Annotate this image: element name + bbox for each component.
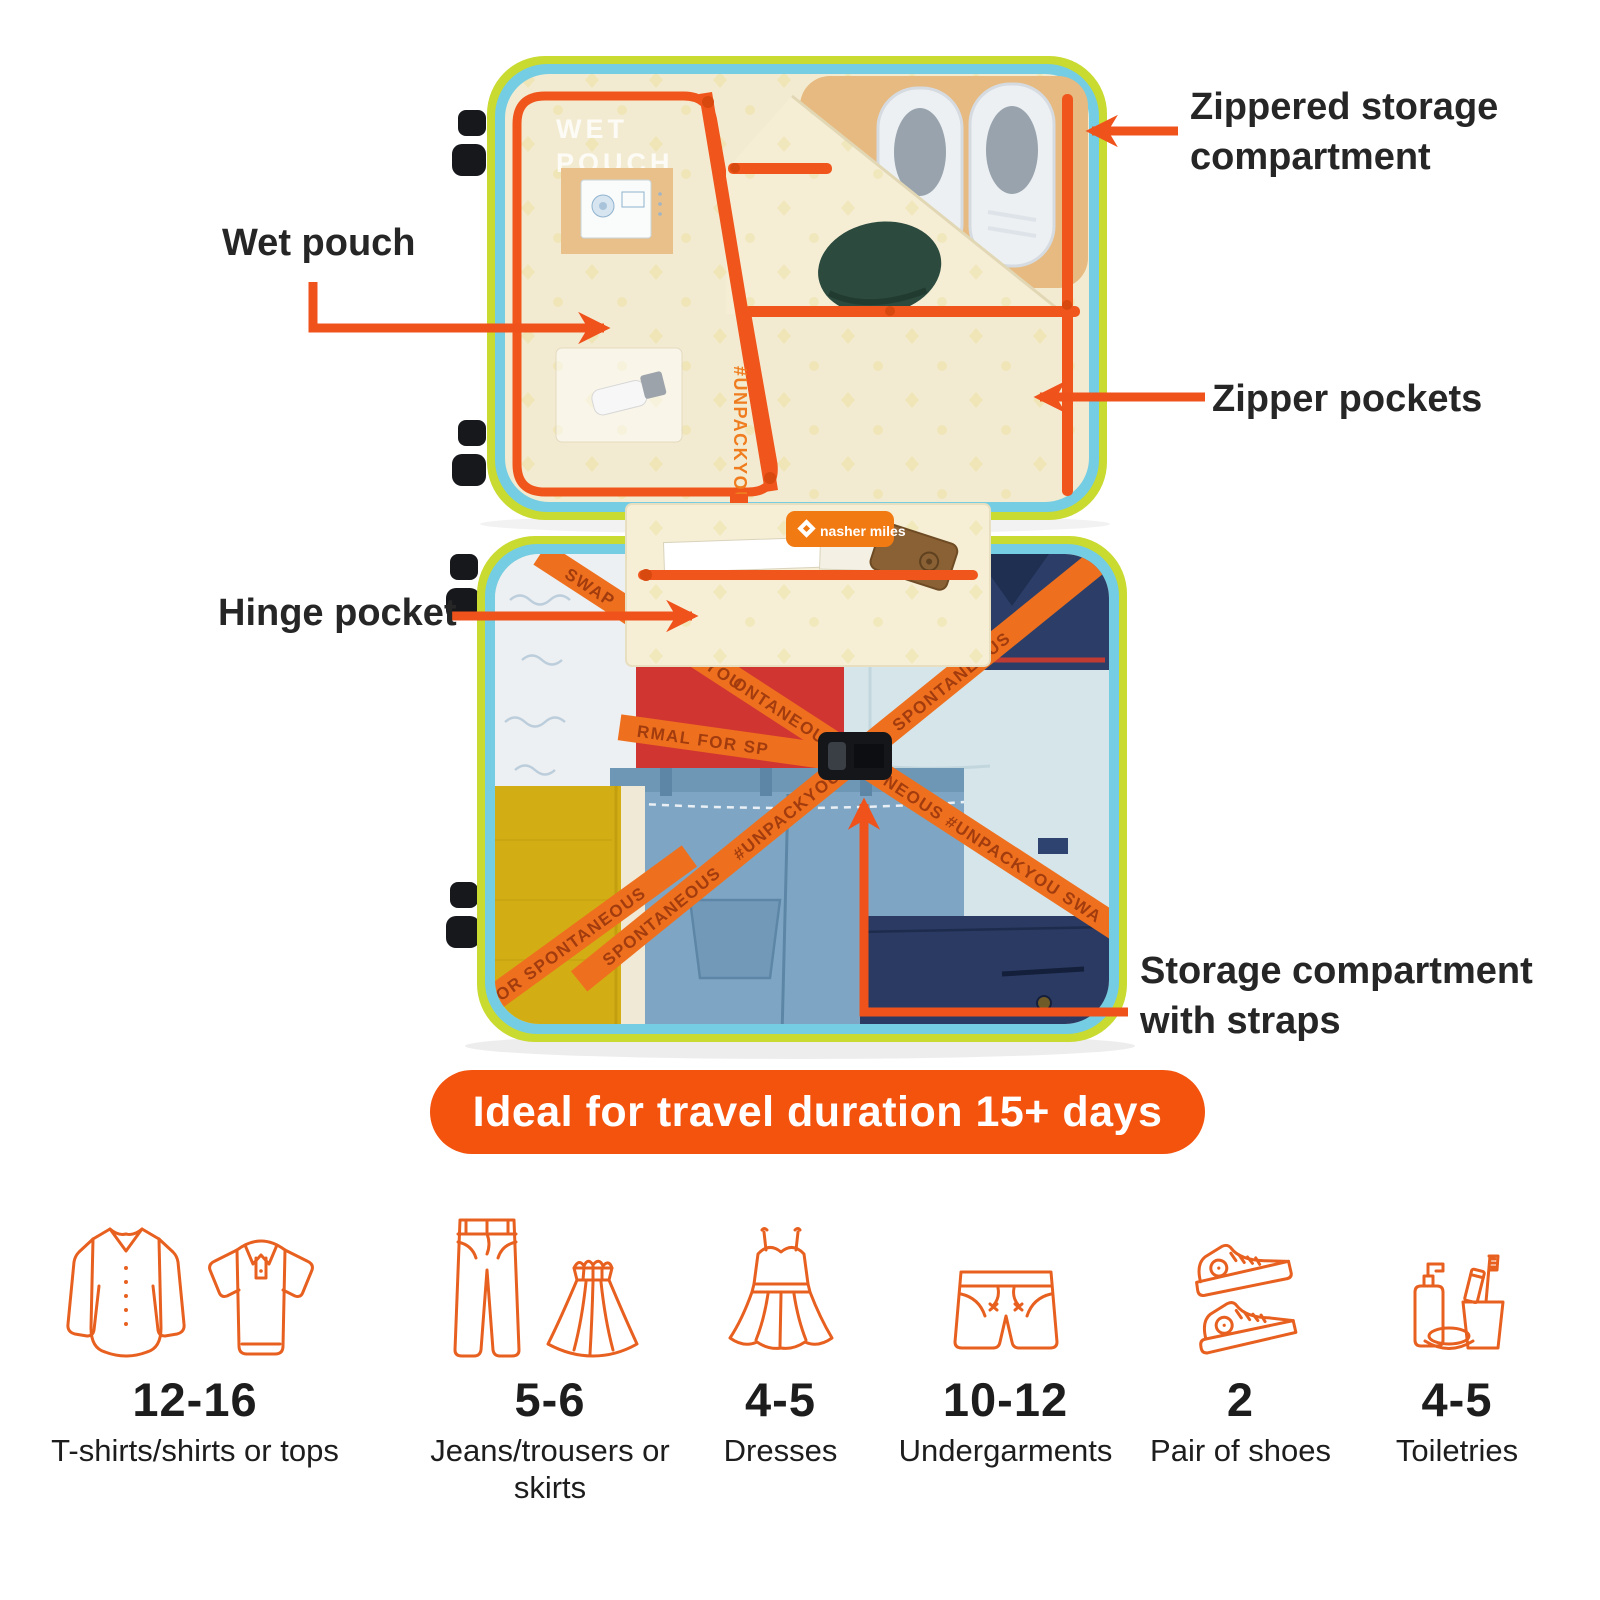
dress-icon: [724, 1226, 838, 1362]
sneakers-icon: [1175, 1238, 1307, 1362]
capacity-item-shoes: 2 Pair of shoes: [1138, 1198, 1343, 1470]
capacity-label: Dresses: [688, 1433, 873, 1470]
capacity-item-dresses: 4-5 Dresses: [688, 1198, 873, 1470]
capacity-item-bottoms: 5-6 Jeans/trousers or skirts: [415, 1198, 685, 1506]
polo-shirt-icon: [197, 1236, 325, 1362]
capacity-count: 12-16: [25, 1372, 365, 1427]
capacity-item-undergarments: 10-12 Undergarments: [878, 1198, 1133, 1470]
brand-patch-text: nasher miles: [820, 523, 906, 539]
capacity-label: Jeans/trousers or skirts: [415, 1433, 685, 1506]
lid-hashtag-print: #UNPACKYOU: [730, 366, 750, 506]
capacity-count: 5-6: [415, 1372, 685, 1427]
capacity-item-tops: 12-16 T-shirts/shirts or tops: [25, 1198, 365, 1470]
infographic-canvas: WET POUCH: [0, 0, 1600, 1600]
sneaker-right: [970, 84, 1054, 266]
capacity-label: Pair of shoes: [1138, 1433, 1343, 1470]
travel-duration-banner: Ideal for travel duration 15+ days: [430, 1070, 1205, 1154]
shirt-icon: [65, 1224, 187, 1362]
label-hinge-pocket: Hinge pocket: [218, 588, 457, 638]
label-zippered-storage: Zippered storage compartment: [1190, 82, 1590, 182]
label-storage-straps: Storage compartment with straps: [1140, 946, 1590, 1046]
label-wet-pouch: Wet pouch: [222, 218, 416, 268]
capacity-count: 2: [1138, 1372, 1343, 1427]
packed-navy-trousers: [860, 916, 1109, 1038]
capacity-item-toiletries: 4-5 Toiletries: [1352, 1198, 1562, 1470]
toiletry-bottle: [556, 348, 682, 442]
hinge-pocket: nasher miles: [626, 494, 990, 666]
strap-buckle: [818, 732, 892, 780]
capacity-label: T-shirts/shirts or tops: [25, 1433, 365, 1470]
skirt-icon: [534, 1250, 650, 1362]
suitcase-lid: WET POUCH: [487, 56, 1107, 520]
capacity-count: 4-5: [688, 1372, 873, 1427]
wet-pouch-print-line1: WET: [556, 114, 628, 144]
care-label-patch: [561, 168, 673, 254]
capacity-count: 10-12: [878, 1372, 1133, 1427]
jeans-icon: [450, 1214, 524, 1362]
capacity-label: Undergarments: [878, 1433, 1133, 1470]
undergarments-icon: [947, 1264, 1065, 1362]
capacity-label: Toiletries: [1352, 1433, 1562, 1470]
brand-patch: nasher miles: [786, 511, 906, 547]
packed-patterned-shirt: [495, 554, 647, 796]
capacity-count: 4-5: [1352, 1372, 1562, 1427]
label-zipper-pockets: Zipper pockets: [1212, 374, 1482, 424]
toiletries-icon: [1405, 1244, 1509, 1362]
